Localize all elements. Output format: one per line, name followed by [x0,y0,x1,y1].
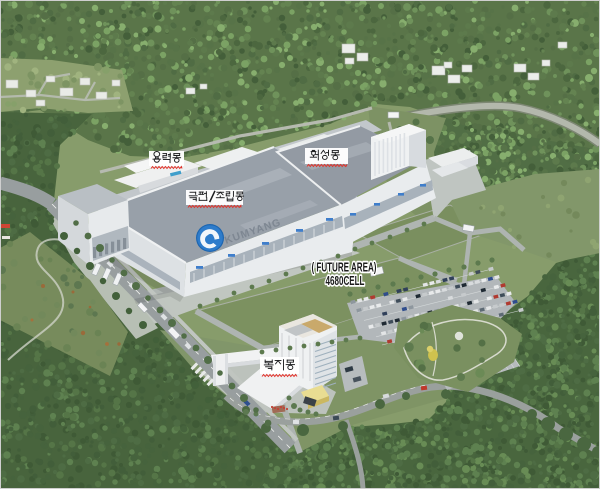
svg-text:4680CELL: 4680CELL [326,274,365,288]
svg-text:( FUTURE AREA): ( FUTURE AREA) [311,261,376,275]
